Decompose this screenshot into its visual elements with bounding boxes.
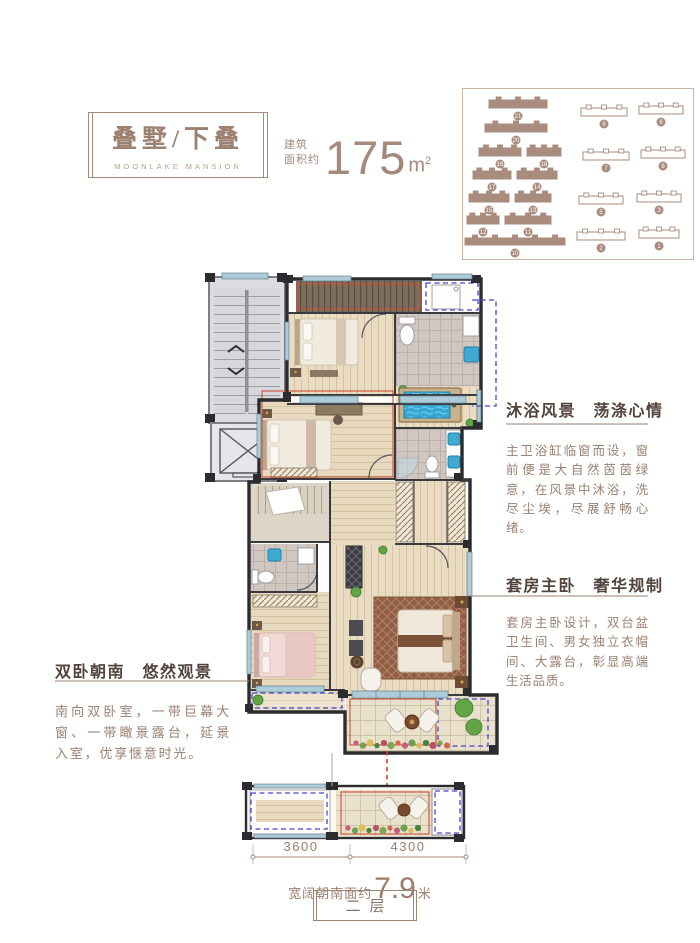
area-label: 建筑 面积约 — [284, 138, 320, 168]
unit-subtitle: MOONLAKE MANSION — [114, 162, 242, 171]
svg-text:21: 21 — [515, 114, 522, 120]
siteplan-building-13: 13 — [515, 191, 551, 215]
area-unit: m2 — [408, 151, 431, 176]
siteplan-building-17: 17 — [473, 168, 511, 192]
annotation-bath-title: 沐浴风景 荡涤心情 — [506, 397, 649, 421]
annotation-bath-view: 沐浴风景 荡涤心情 主卫浴缸临窗而设，窗前便是大自然茵茵绿意，在风景中沐浴，洗尽… — [506, 397, 649, 538]
svg-text:20: 20 — [513, 138, 520, 144]
title-box-ornament-right — [263, 113, 264, 177]
unit-title-box: 叠墅/下叠 MOONLAKE MANSION — [88, 112, 268, 178]
annotation-suite-title: 套房主卧 奢华规制 — [506, 572, 649, 596]
svg-text:16: 16 — [497, 162, 504, 168]
siteplan-building-12: 12 — [467, 213, 499, 237]
area-block: 建筑 面积约 175 m2 — [284, 116, 431, 178]
floor-box-ornament-right — [413, 891, 414, 920]
svg-text:17: 17 — [489, 185, 496, 191]
unit-title: 叠墅/下叠 — [112, 119, 244, 155]
dim-right: 4300 — [391, 839, 426, 854]
siteplan-building-16: 16 — [479, 145, 521, 169]
title-box-ornament-left — [92, 113, 93, 177]
floor-label-box: 二层 — [313, 890, 417, 921]
siteplan-building-5: 5 — [579, 193, 623, 217]
svg-text:11: 11 — [525, 230, 532, 236]
siteplan-building-21: 21 — [489, 97, 547, 121]
siteplan-building-3: 3 — [637, 191, 681, 215]
floor-box-ornament-left — [316, 891, 317, 920]
siteplan-building-6: 6 — [641, 147, 685, 171]
siteplan-building-7: 7 — [583, 149, 629, 173]
siteplan-map: 212016181714151312111098765321 — [462, 88, 694, 260]
area-value: 175 — [325, 138, 406, 178]
width-note-unit: 米 — [418, 883, 432, 902]
siteplan-building-9: 9 — [581, 105, 627, 129]
annotation-south-body: 南向双卧室，一带巨幕大窗、一带瞰景露台，延景入室，优享惬意时光。 — [55, 701, 231, 764]
svg-text:14: 14 — [534, 185, 541, 191]
siteplan-building-11: 11 — [505, 213, 551, 237]
dim-left: 3600 — [284, 839, 319, 854]
siteplan-building-10: 10 — [465, 235, 565, 258]
annotation-bath-body: 主卫浴缸临窗而设，窗前便是大自然茵茵绿意，在风景中沐浴，洗尽尘埃，尽展舒畅心绪。 — [506, 442, 649, 538]
floor-label: 二层 — [336, 895, 393, 916]
dimension-lines: 3600 4300 — [251, 839, 468, 864]
annotation-master-suite: 套房主卧 奢华规制 套房主卧设计，双台盆卫生间、男女独立衣帽间、大露台，彰显高端… — [506, 572, 649, 691]
siteplan-building-15: 15 — [469, 191, 509, 215]
lower-strip — [242, 753, 464, 842]
siteplan-building-20: 20 — [485, 121, 547, 145]
svg-text:18: 18 — [541, 162, 548, 168]
siteplan-building-1: 1 — [639, 227, 679, 251]
siteplan-building-18: 18 — [527, 145, 561, 169]
annotation-south-title: 双卧朝南 悠然观景 — [55, 658, 231, 682]
svg-text:12: 12 — [480, 230, 487, 236]
floorplan-page: 叠墅/下叠 MOONLAKE MANSION 建筑 面积约 175 m2 212… — [0, 0, 700, 943]
siteplan-building-14: 14 — [517, 168, 557, 192]
siteplan-building-8: 8 — [639, 103, 683, 127]
annotation-suite-body: 套房主卧设计，双台盆卫生间、男女独立衣帽间、大露台，彰显高端生活品质。 — [506, 614, 649, 691]
annotation-south-bedrooms: 双卧朝南 悠然观景 南向双卧室，一带巨幕大窗、一带瞰景露台，延景入室，优享惬意时… — [55, 658, 231, 764]
svg-text:10: 10 — [512, 251, 519, 257]
siteplan-building-2: 2 — [577, 229, 625, 253]
